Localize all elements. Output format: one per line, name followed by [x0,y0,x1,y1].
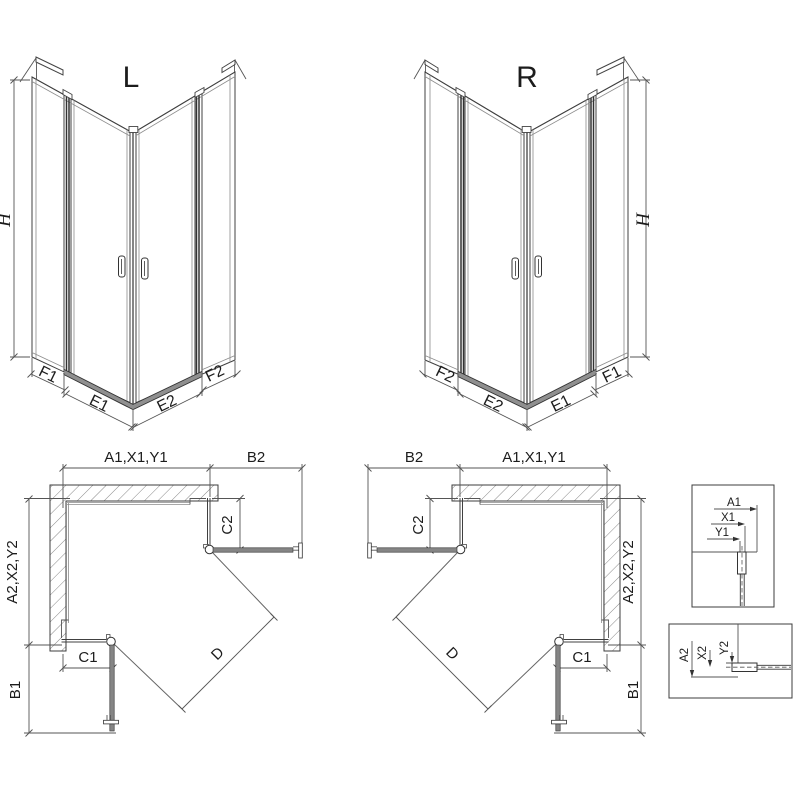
height-dim-label: H [633,212,654,228]
plan-dim-a2x2y2: A2,X2,Y2 [620,540,637,603]
plan-dim-c1: C1 [572,649,591,666]
detail-dim-y1: Y1 [715,527,729,539]
iso-view-left: L H F1 E1 E2 F2 [0,57,246,431]
height-dim-label: H [0,212,15,228]
plan-geometry-left [24,464,306,737]
detail-dim-a1: A1 [727,497,741,509]
detail-dim-a2: A2 [679,648,691,662]
plan-dim-a1x1y1: A1,X1,Y1 [104,449,167,466]
detail-box-wall-profile-bottom: A2 X2 Y2 [669,624,792,698]
plan-dim-a2x2y2: A2,X2,Y2 [4,540,21,603]
plan-dim-c2: C2 [219,515,236,534]
plan-dim-b2: B2 [405,449,423,466]
building-walls-hatched [452,485,620,651]
plan-dim-b1: B1 [7,681,24,699]
detail-dim-y2: Y2 [719,641,731,655]
plan-dim-d: D [442,644,462,664]
detail-dim-x2: X2 [697,646,709,660]
plan-dim-b2: B2 [247,449,265,466]
variant-title-left: L [123,61,140,94]
detail-dim-x1: X1 [721,512,735,524]
plan-dim-c1: C1 [78,649,97,666]
plan-geometry-right-mirrored [365,464,647,737]
iso-view-right: R H F2 E2 E1 F1 [414,57,654,431]
plan-dim-a1x1y1: A1,X1,Y1 [502,449,565,466]
building-walls-hatched [50,485,218,651]
technical-drawing-page: L H F1 E1 E2 F2 R H F2 E2 E1 F1 A1,X1,Y1… [0,0,800,800]
plan-dim-b1: B1 [625,681,642,699]
variant-title-right: R [516,61,538,94]
detail-box-wall-profile-top: A1 X1 Y1 [692,485,774,607]
plan-view-left: A1,X1,Y1 B2 C2 A2,X2,Y2 C1 B1 D [4,449,306,737]
plan-dim-d: D [208,644,228,664]
plan-dim-c2: C2 [410,515,427,534]
shower-enclosure-diagram: L H F1 E1 E2 F2 R H F2 E2 E1 F1 A1,X1,Y1… [0,0,800,800]
plan-view-right: B2 A1,X1,Y1 C2 A2,X2,Y2 C1 B1 D [365,449,647,737]
